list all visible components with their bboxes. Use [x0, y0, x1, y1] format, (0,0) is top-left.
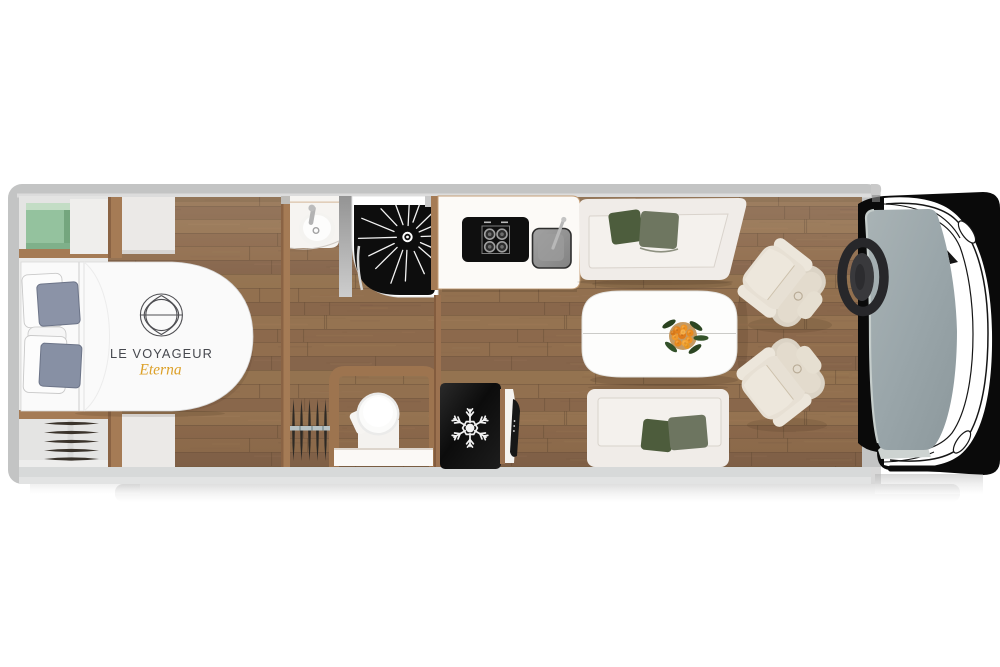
svg-text:Eterna: Eterna [138, 362, 181, 379]
svg-text:LE VOYAGEUR: LE VOYAGEUR [110, 346, 213, 361]
